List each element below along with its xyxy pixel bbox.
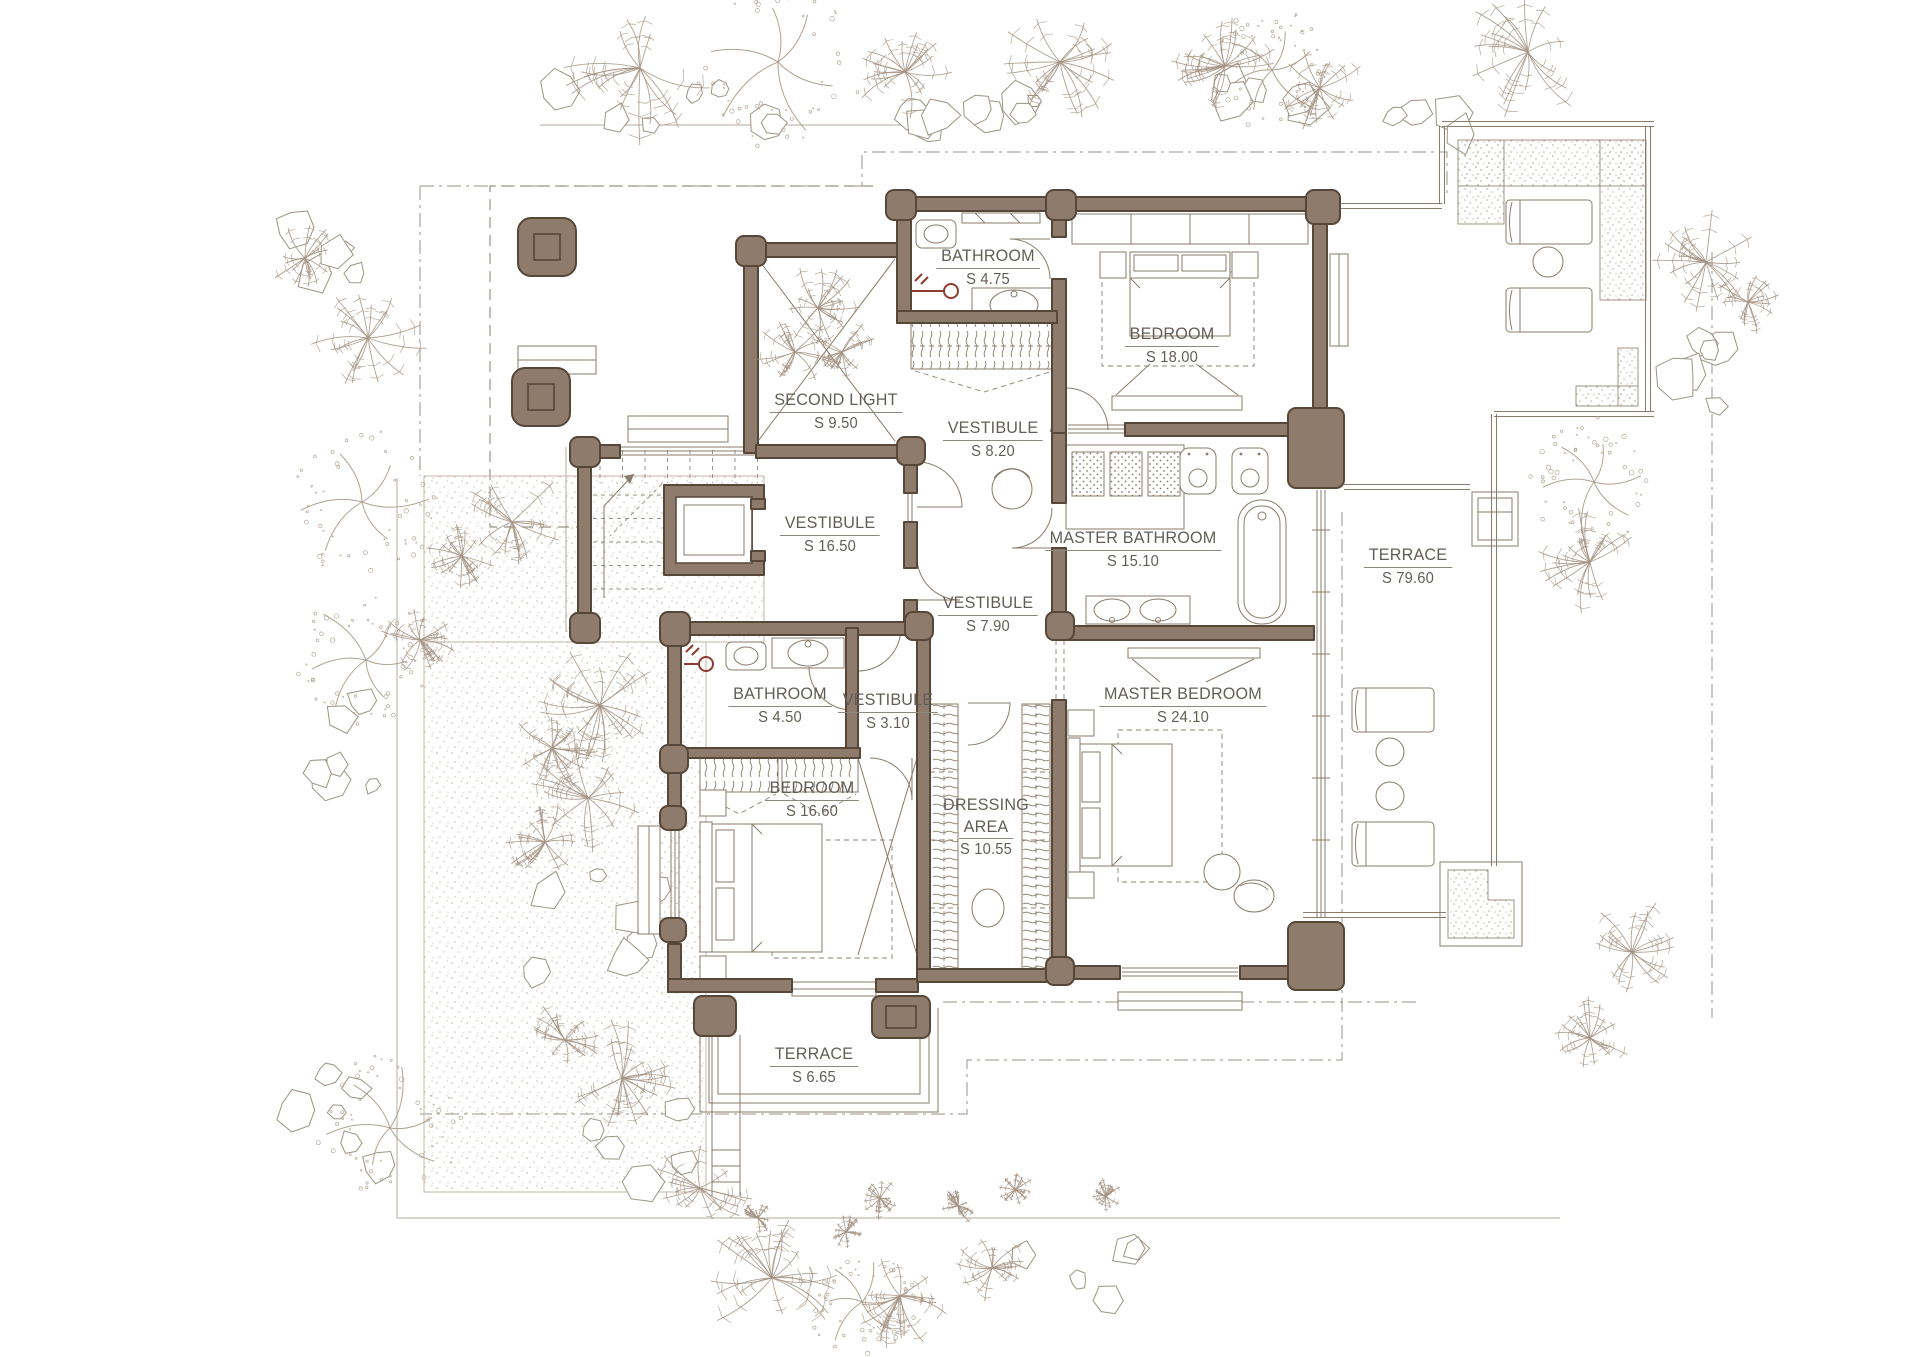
- room-area: S 15.10: [1045, 553, 1221, 572]
- room-name: BEDROOM: [765, 778, 859, 801]
- room-name: VESTIBULE: [838, 690, 938, 713]
- room-label-bathroom-2: BATHROOMS 4.50: [728, 684, 831, 728]
- room-label-second-light: SECOND LIGHTS 9.50: [770, 390, 903, 434]
- room-name: VESTIBULE: [938, 593, 1038, 616]
- room-area: S 4.75: [936, 271, 1039, 290]
- room-area: S 79.60: [1364, 570, 1452, 589]
- room-area: S 6.65: [770, 1069, 858, 1088]
- room-name: DRESSING: [938, 795, 1033, 817]
- room-label-vestibule-3: VESTIBULES 3.10: [838, 690, 938, 734]
- room-name: BATHROOM: [936, 246, 1039, 269]
- room-area: S 16.50: [780, 538, 880, 557]
- room-area: S 3.10: [838, 715, 938, 734]
- room-label-vestibule-2: VESTIBULES 7.90: [938, 593, 1038, 637]
- room-label-terrace-right: TERRACES 79.60: [1364, 545, 1452, 589]
- room-area: S 9.50: [770, 415, 903, 434]
- room-name: AREA: [959, 817, 1013, 840]
- room-area: S 7.90: [938, 618, 1038, 637]
- room-area: S 18.00: [1125, 349, 1219, 368]
- room-name: MASTER BEDROOM: [1099, 684, 1266, 707]
- room-label-master-bathroom: MASTER BATHROOMS 15.10: [1045, 528, 1221, 572]
- floor-plan: BATHROOMS 4.75BEDROOMS 18.00SECOND LIGHT…: [0, 0, 1920, 1357]
- room-label-bedroom-1: BEDROOMS 18.00: [1125, 324, 1219, 368]
- room-label-vestibule-1: VESTIBULES 8.20: [943, 418, 1043, 462]
- room-label-bathroom-1: BATHROOMS 4.75: [936, 246, 1039, 290]
- room-name: BEDROOM: [1125, 324, 1219, 347]
- room-name: MASTER BATHROOM: [1045, 528, 1221, 551]
- room-area: S 4.50: [728, 709, 831, 728]
- room-label-terrace-bottom: TERRACES 6.65: [770, 1044, 858, 1088]
- room-label-master-bedroom: MASTER BEDROOMS 24.10: [1099, 684, 1266, 728]
- room-name: SECOND LIGHT: [770, 390, 903, 413]
- room-name: TERRACE: [770, 1044, 858, 1067]
- room-label-dressing-area: DRESSINGAREAS 10.55: [938, 795, 1033, 860]
- room-area: S 24.10: [1099, 709, 1266, 728]
- room-label-bedroom-2: BEDROOMS 16.60: [765, 778, 859, 822]
- room-area: S 16.60: [765, 803, 859, 822]
- room-area: S 8.20: [943, 443, 1043, 462]
- room-name: TERRACE: [1364, 545, 1452, 568]
- room-name: BATHROOM: [728, 684, 831, 707]
- room-label-vestibule-main: VESTIBULES 16.50: [780, 513, 880, 557]
- floor-plan-drawing: [0, 0, 1920, 1357]
- room-area: S 10.55: [938, 841, 1033, 860]
- room-name: VESTIBULE: [943, 418, 1043, 441]
- room-name: VESTIBULE: [780, 513, 880, 536]
